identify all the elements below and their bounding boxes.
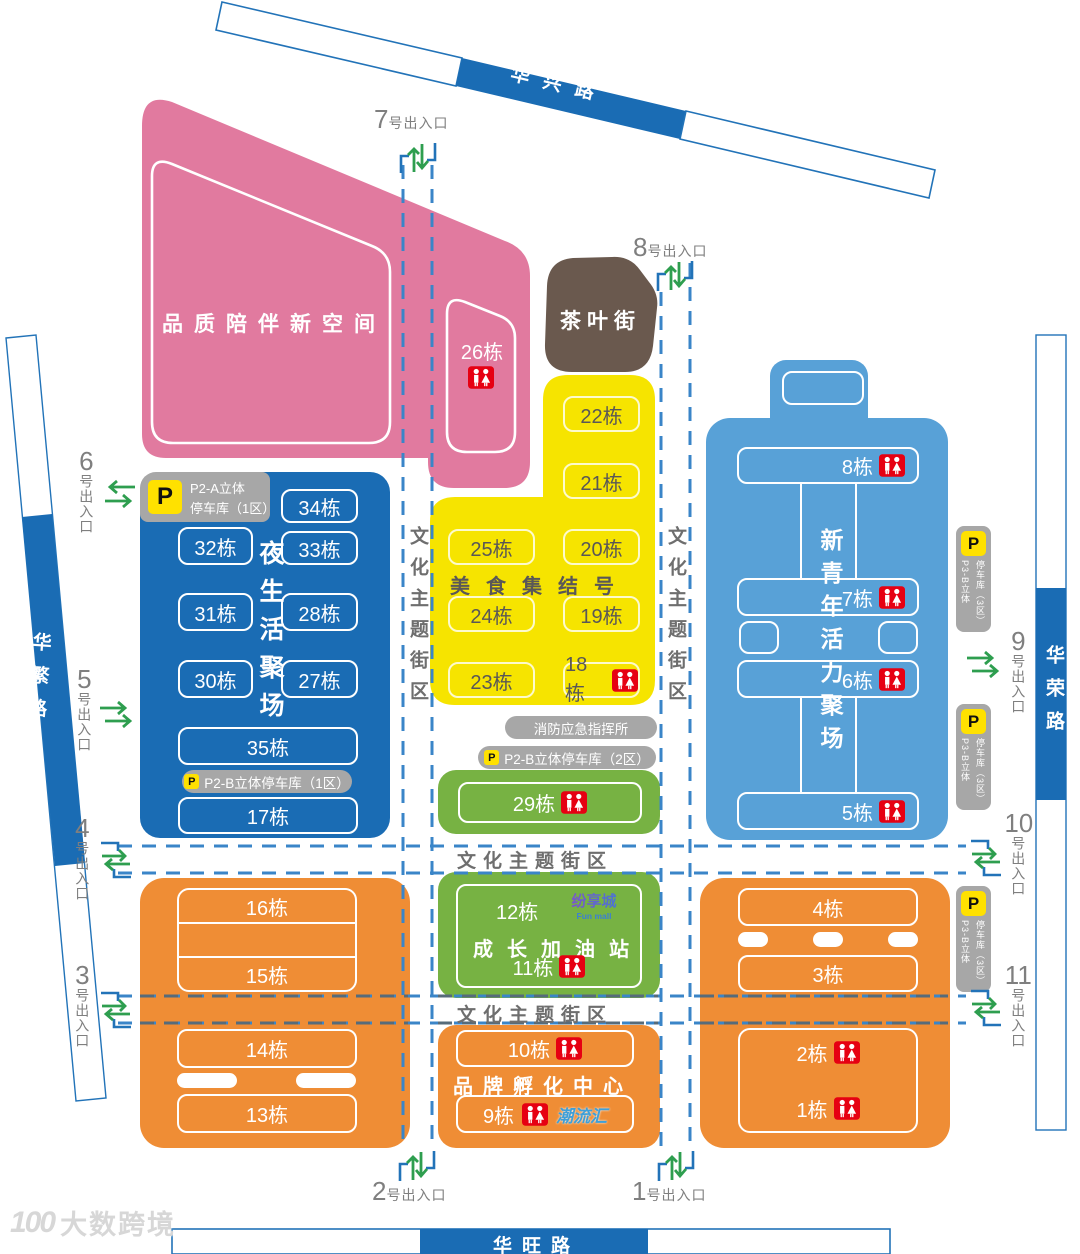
- zone-tea-name: 茶叶街: [560, 305, 641, 335]
- building-31: 31栋: [178, 593, 253, 631]
- footprint-square-left: [739, 621, 779, 654]
- building-32: 32栋: [178, 527, 253, 565]
- decor-pill: [738, 932, 768, 947]
- decor-pill: [813, 932, 843, 947]
- building-18: 18栋: [563, 662, 640, 698]
- building-16-15-block: 16栋 15栋: [177, 888, 357, 992]
- entrance-10-icon: [968, 836, 1004, 880]
- zone-blue-left-name: 夜生活聚场: [252, 540, 288, 730]
- wc-icon: [834, 1041, 860, 1064]
- fire-command-sign: 消防应急指挥所: [505, 716, 657, 739]
- decor-pill: [888, 932, 918, 947]
- wc-icon: [612, 669, 638, 692]
- building-3: 3栋: [738, 955, 918, 992]
- parking-icon: P: [961, 891, 986, 916]
- parking-icon: P: [484, 750, 499, 765]
- building-23: 23栋: [448, 662, 535, 698]
- divider: [179, 922, 355, 924]
- wc-icon: [879, 586, 905, 609]
- zone-yellow-name: 美食集结号: [450, 570, 630, 599]
- building-33: 33栋: [281, 531, 358, 565]
- building-34: 34栋: [281, 489, 358, 523]
- entrance-5-icon: [95, 698, 135, 730]
- building-24: 24栋: [448, 596, 535, 632]
- entrance-4-label: 4号出入口: [68, 815, 95, 901]
- watermark-text: 大数跨境: [60, 1203, 176, 1242]
- parking-sign-p3b-3: P P3-B立体 停车库（3区）: [956, 886, 991, 992]
- building-30: 30栋: [178, 660, 253, 698]
- decor-pill: [177, 1073, 237, 1088]
- entrance-9-label: 9号出入口: [1004, 628, 1031, 714]
- entrance-6-icon: [100, 478, 140, 510]
- entrance-3-label: 3号出入口: [68, 962, 95, 1048]
- building-4: 4栋: [738, 888, 918, 926]
- building-19: 19栋: [563, 596, 640, 632]
- cultural-street-label-mid: 文化主题街区: [457, 846, 613, 873]
- zone-pink-name: 品质陪伴新空间: [162, 308, 386, 338]
- building-29: 29栋: [458, 782, 642, 823]
- building-13: 13栋: [177, 1094, 357, 1133]
- building-1-row: 1栋: [796, 1094, 859, 1123]
- building-22: 22栋: [563, 396, 640, 432]
- decor-pill: [296, 1073, 356, 1088]
- wc-icon: [879, 668, 905, 691]
- chaoliuhui-logo: 潮流汇: [556, 1102, 607, 1127]
- wc-icon: [879, 454, 905, 477]
- building-26-label: 26栋: [452, 336, 512, 365]
- watermark-logo: 100: [10, 1206, 54, 1240]
- building-21: 21栋: [563, 463, 640, 499]
- building-17: 17栋: [178, 797, 358, 834]
- cultural-street-label-left: 文化主题街区: [404, 526, 431, 712]
- building-16-label: 16栋: [179, 892, 355, 921]
- entrance-7-icon: [396, 140, 440, 176]
- footprint-square-right: [878, 621, 918, 654]
- divider: [179, 956, 355, 958]
- entrance-6-label: 6号出入口: [72, 448, 99, 534]
- entrance-9-icon: [962, 648, 1002, 680]
- building-28: 28栋: [281, 593, 358, 631]
- mall-map: 华兴路 华繁路 华荣路 华旺路 文化主题街区 文化主题街区 文化主题街区 文化主…: [0, 0, 1080, 1254]
- parking-sign-p2b-1: P P2-B立体停车库（1区）: [182, 770, 352, 793]
- entrance-11-icon: [968, 986, 1004, 1030]
- entrance-2-label: 2号出入口: [372, 1176, 446, 1207]
- wc-icon: [556, 1037, 582, 1060]
- wc-icon: [559, 955, 585, 978]
- building-15-label: 15栋: [179, 960, 355, 989]
- parking-icon: P: [961, 709, 986, 734]
- zone-blue-right-name: 新青年活力聚场: [813, 528, 847, 759]
- entrance-4-icon: [98, 838, 134, 882]
- cultural-street-label-bottom: 文化主题街区: [457, 1000, 613, 1027]
- building-8: 8栋: [737, 447, 919, 484]
- wc-icon: [561, 791, 587, 814]
- entrance-10-label: 10号出入口: [1004, 810, 1031, 896]
- building-27: 27栋: [281, 660, 358, 698]
- building-11-row: 11栋: [456, 952, 642, 981]
- entrance-8-icon: [653, 258, 697, 294]
- building-12-label: 12栋: [496, 896, 538, 925]
- parking-sign-p3b-2: P P3-B立体 停车库（3区）: [956, 704, 991, 810]
- building-14: 14栋: [177, 1029, 357, 1068]
- building-25: 25栋: [448, 529, 535, 565]
- entrance-7-label: 7号出入口: [374, 104, 448, 135]
- entrance-5-label: 5号出入口: [70, 666, 97, 752]
- road-name-huarong: 华荣路: [1040, 645, 1067, 744]
- entrance-11-label: 11号出入口: [1004, 962, 1031, 1048]
- building-2-row: 2栋: [796, 1038, 859, 1067]
- building-2-1-block: 2栋 1栋: [738, 1028, 918, 1133]
- building-5: 5栋: [737, 792, 919, 830]
- parking-sign-p3b-1: P P3-B立体 停车库（3区）: [956, 526, 991, 632]
- wc-icon: [879, 800, 905, 823]
- wc-icon: [522, 1103, 548, 1126]
- entrance-1-label: 1号出入口: [632, 1176, 706, 1207]
- parking-icon: P: [148, 480, 182, 514]
- road-name-huawang: 华旺路: [493, 1231, 580, 1254]
- parking-sign-p2b-2: P P2-B立体停车库（2区）: [478, 746, 656, 769]
- funmall-logo: 纷享城 Fun mall: [556, 890, 632, 921]
- building-20: 20栋: [563, 529, 640, 565]
- parking-icon: P: [961, 531, 986, 556]
- cultural-street-label-right: 文化主题街区: [662, 526, 689, 712]
- parking-sign-p2a: P P2-A立体 停车库（1区）: [140, 472, 270, 522]
- parking-icon: P: [184, 774, 199, 789]
- blue-right-nub-outline: [782, 371, 864, 405]
- wc-icon: [468, 366, 494, 389]
- building-10: 10栋: [456, 1030, 634, 1067]
- building-35: 35栋: [178, 727, 358, 765]
- entrance-3-icon: [98, 988, 134, 1032]
- watermark: 100 大数跨境: [10, 1203, 176, 1242]
- wc-icon: [834, 1097, 860, 1120]
- building-9: 9栋 潮流汇: [456, 1095, 634, 1133]
